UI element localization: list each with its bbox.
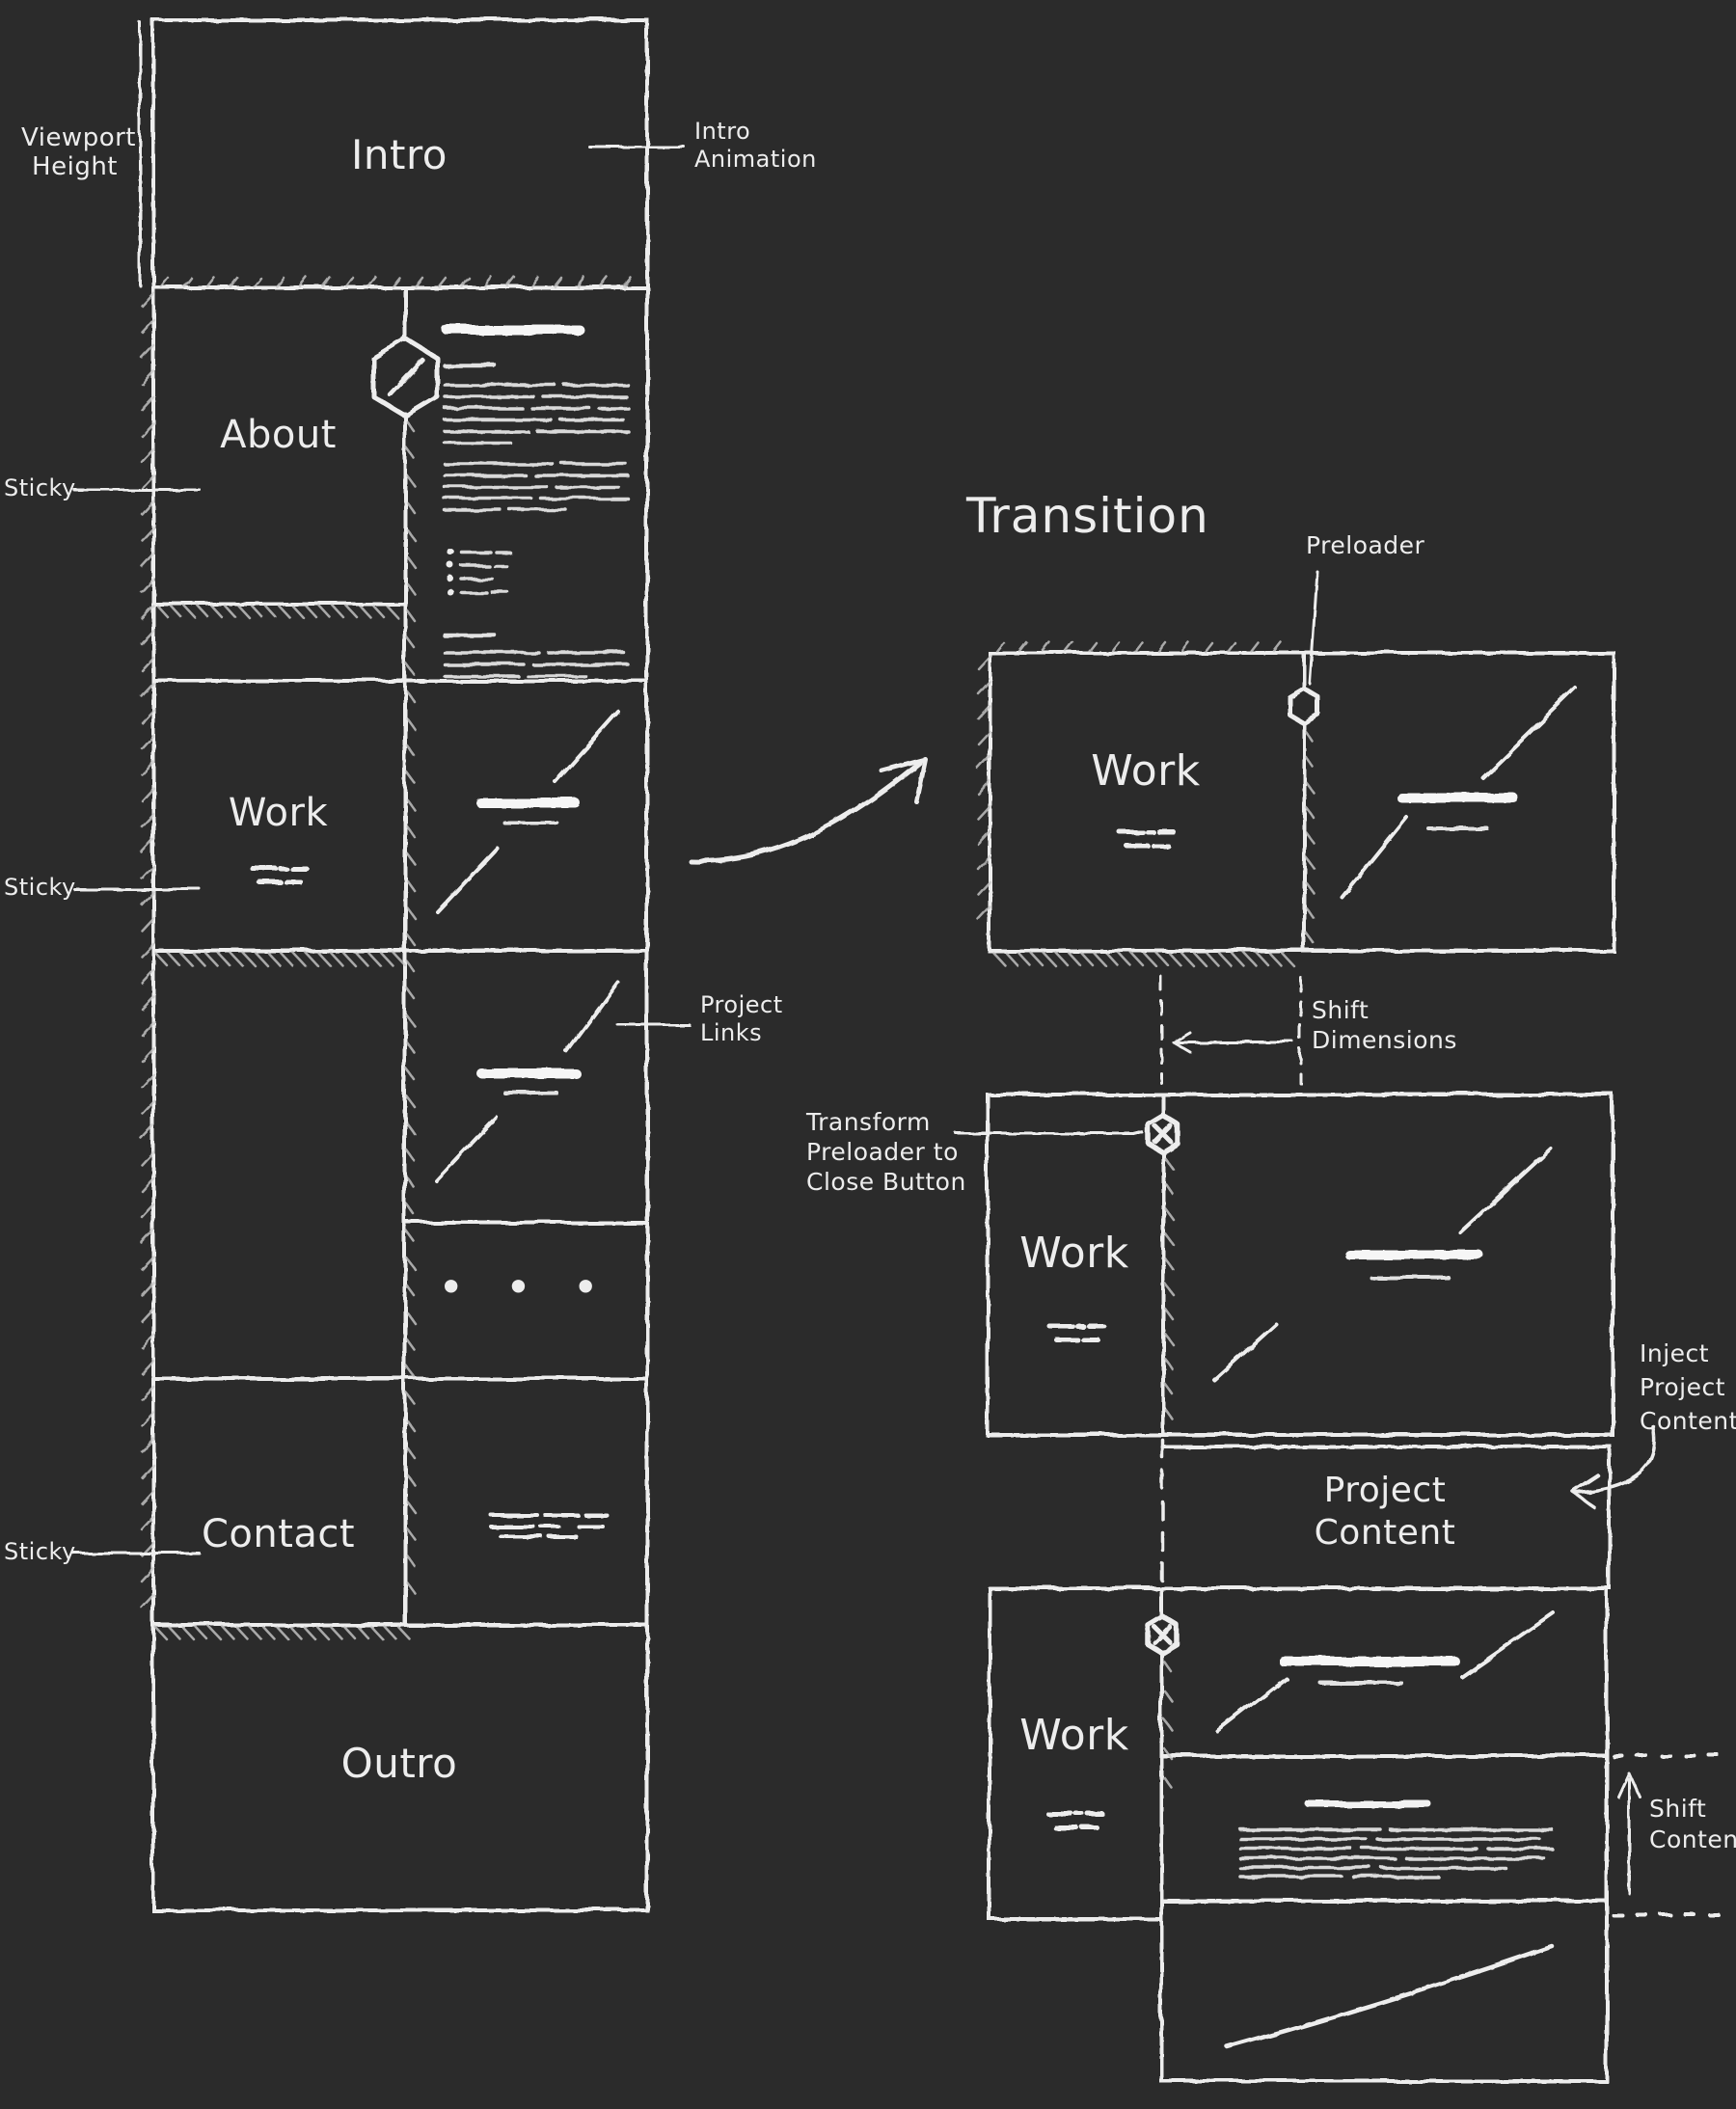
sticky-label-2: Sticky (4, 874, 66, 902)
project-content-label: Project Content (1161, 1470, 1609, 1555)
step3-tile-b (1239, 1803, 1551, 1876)
project-tile-2 (436, 982, 617, 1180)
close-button-icon (1148, 1115, 1177, 1151)
transition-arrow (690, 758, 924, 860)
step3-tile-a (1217, 1612, 1553, 1731)
about-bullet-list (448, 549, 510, 596)
intro-animation-label: Intro Animation (694, 118, 817, 174)
sketch-strokes (0, 0, 1736, 2109)
section-about: About (152, 413, 404, 457)
step1-work-label: Work (989, 746, 1303, 796)
shift-content-label: Shift Content (1649, 1794, 1736, 1855)
shift-dimensions-annotation (1160, 976, 1299, 1082)
viewport-height-label: Viewport Height (21, 123, 118, 181)
section-contact: Contact (152, 1512, 404, 1556)
section-outro: Outro (152, 1740, 646, 1787)
about-content-placeholder (444, 329, 627, 675)
step2-project-tile (1213, 1148, 1550, 1379)
preloader-callout-line (1309, 571, 1316, 683)
shift-dimensions-label: Shift Dimensions (1312, 995, 1457, 1055)
step2-work-label: Work (987, 1229, 1162, 1278)
close-button-icon-2 (1147, 1615, 1176, 1652)
transition-step-3 (989, 1587, 1606, 2080)
preloader-label: Preloader (1306, 530, 1424, 560)
work-tagline-placeholder (252, 868, 306, 881)
step3-tile-c-stroke (1227, 1945, 1551, 2046)
contact-content-placeholder (490, 1514, 606, 1535)
more-projects-dots: • • • (404, 1261, 646, 1313)
sitemap-outline (152, 19, 646, 1909)
transform-preloader-label: Transform Preloader to Close Button (806, 1107, 966, 1197)
step3-work-label: Work (989, 1711, 1160, 1760)
about-badge-icon (372, 338, 436, 415)
project-tile-1 (436, 711, 617, 910)
step1-project-tile (1341, 688, 1575, 896)
sticky-label-1: Sticky (4, 474, 66, 502)
sketch-canvas: Viewport Height Intro Intro Animation Ab… (0, 0, 1736, 2109)
section-work: Work (152, 791, 404, 835)
sticky-label-3: Sticky (4, 1538, 66, 1566)
project-links-label: Project Links (700, 991, 783, 1047)
section-intro: Intro (152, 131, 646, 178)
sitemap-hatching (141, 277, 630, 1637)
preloader-hexagon-icon (1288, 688, 1317, 722)
transition-heading: Transition (966, 488, 1209, 544)
inject-project-content-label: Inject Project Content (1640, 1337, 1736, 1438)
